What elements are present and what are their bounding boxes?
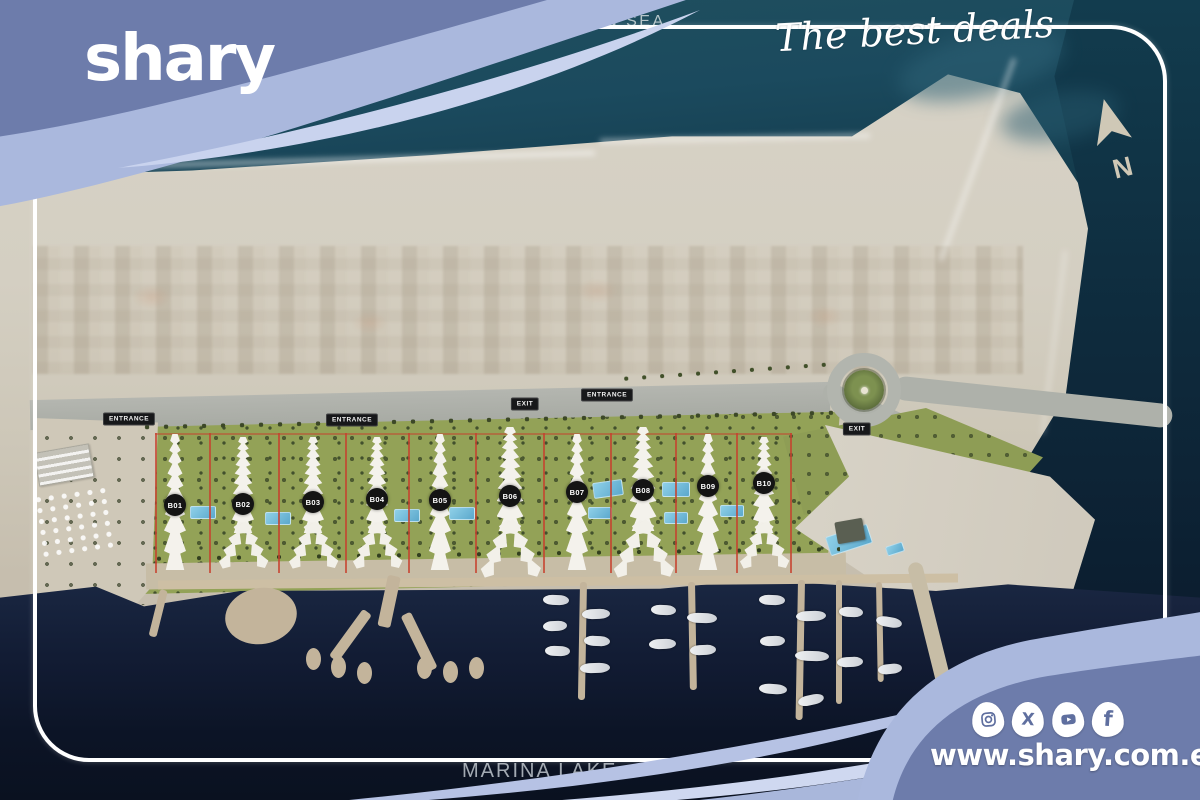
brand-logo: shary — [84, 22, 274, 96]
social-icons-row: X f — [972, 702, 1124, 737]
website-url[interactable]: www.shary.com.eg — [930, 738, 1175, 772]
frame-border — [33, 25, 1167, 762]
marina-lake-label: MARINA LAKE — [462, 760, 617, 783]
instagram-icon[interactable] — [971, 701, 1006, 739]
youtube-icon[interactable] — [1051, 701, 1086, 739]
promo-banner: B01B02B03B04B05B06B07B08B09B10 ENTRANCEE… — [0, 0, 1200, 800]
x-icon[interactable]: X — [1011, 701, 1045, 738]
facebook-icon[interactable]: f — [1091, 701, 1125, 738]
